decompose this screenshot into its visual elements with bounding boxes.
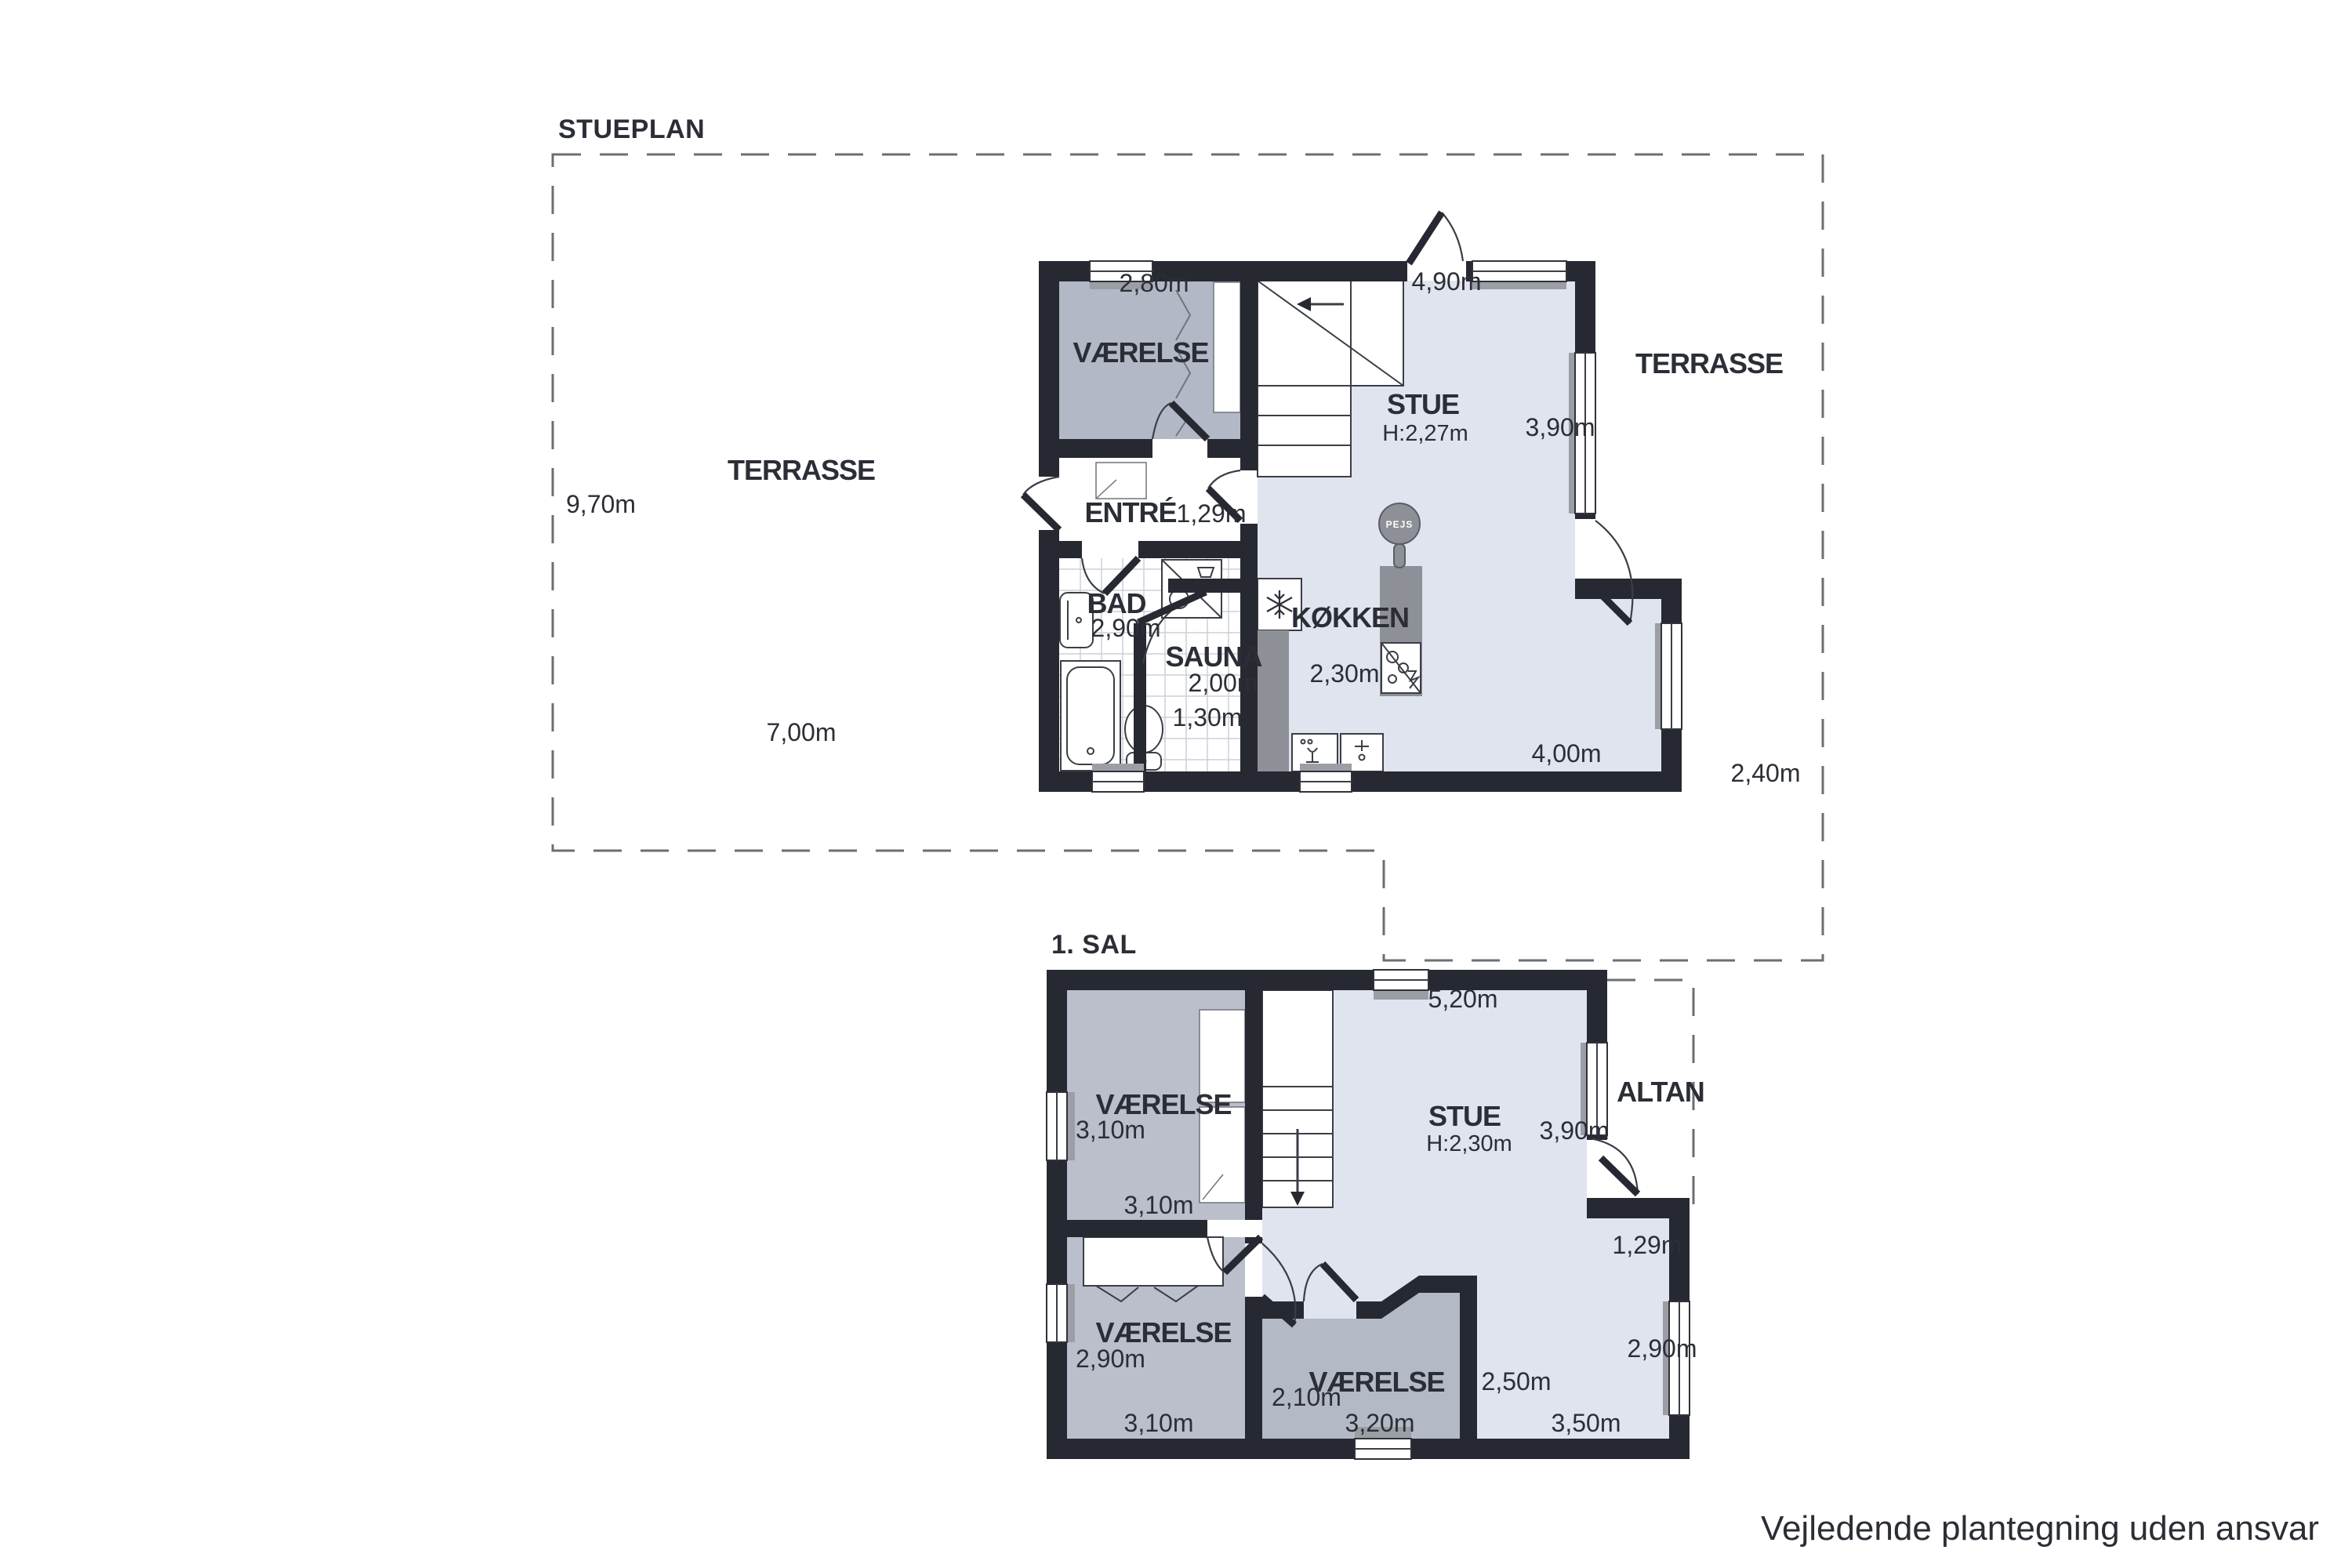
dim-center-bottom: 3,20m: [1345, 1409, 1415, 1437]
dim-nw-left: 3,10m: [1076, 1116, 1145, 1144]
ground-floor-plan: STUEPLAN TERRASSE 9,70m 7,00m TERRASSE 2…: [553, 114, 1823, 960]
terrasse-left-label: TERRASSE: [728, 454, 875, 486]
dim-entre-width: 1,29m: [1177, 499, 1247, 528]
dim-sw-bottom: 3,10m: [1124, 1409, 1194, 1437]
dim-terrasse-height: 9,70m: [566, 490, 636, 518]
ground-floor-title: STUEPLAN: [558, 114, 705, 144]
stove-icon: [1381, 643, 1421, 693]
disclaimer-text: Vejledende plantegning uden ansvar: [1761, 1509, 2319, 1548]
first-stue-label: STUE: [1428, 1100, 1501, 1132]
dim-terrasse-width: 7,00m: [767, 718, 837, 746]
sauna-label: SAUNA: [1165, 641, 1262, 673]
kitchen-counter-left: [1258, 630, 1289, 771]
first-staircase: [1262, 990, 1333, 1207]
dim-sw-left: 2,90m: [1076, 1345, 1145, 1373]
first-floor-title: 1. SAL: [1051, 930, 1137, 960]
altan-label: ALTAN: [1617, 1076, 1704, 1108]
dim-open-right: 2,90m: [1628, 1334, 1697, 1363]
dim-right-offset: 2,40m: [1731, 759, 1801, 787]
dim-nw-bottom: 3,10m: [1124, 1191, 1194, 1219]
dim-sauna-depth: 2,00m: [1189, 669, 1258, 697]
dim-kokken-width: 2,30m: [1310, 659, 1380, 688]
ground-vaerelse-label: VÆRELSE: [1073, 336, 1208, 368]
stue-terrace-door-top: [1409, 212, 1442, 263]
dim-vaerelse-width: 2,80m: [1120, 269, 1189, 297]
dim-center-left: 2,10m: [1272, 1383, 1341, 1411]
first-stue-height: H:2,30m: [1426, 1131, 1512, 1156]
kokken-label: KØKKEN: [1291, 601, 1409, 633]
dim-step-width: 1,29m: [1613, 1231, 1682, 1259]
dim-first-stue-right: 3,90m: [1540, 1116, 1610, 1145]
dim-center-right: 2,50m: [1482, 1367, 1552, 1396]
entre-closet: [1096, 463, 1146, 499]
pejs-label: PEJS: [1386, 519, 1414, 530]
terrasse-right-label: TERRASSE: [1635, 347, 1783, 379]
ground-stue-label: STUE: [1387, 388, 1459, 420]
dim-stue-top: 4,90m: [1412, 267, 1482, 296]
ground-stue-height: H:2,27m: [1382, 421, 1468, 446]
altan-door: [1601, 1158, 1638, 1194]
entrance-door: [1023, 495, 1059, 530]
floorplan-page: STUEPLAN TERRASSE 9,70m 7,00m TERRASSE 2…: [0, 0, 2352, 1568]
floorplan-drawing: STUEPLAN TERRASSE 9,70m 7,00m TERRASSE 2…: [0, 0, 2352, 1568]
dim-bad-width: 2,90m: [1091, 614, 1161, 642]
dim-stue-right: 3,90m: [1526, 413, 1595, 441]
dim-first-stue-top: 5,20m: [1428, 985, 1498, 1013]
entre-label: ENTRÉ: [1084, 496, 1176, 528]
first-floor-plan: 1. SAL VÆRELSE 3,10m 3,10m 5,20m STUE H:…: [1047, 930, 1704, 1459]
vaerelse-sw-label: VÆRELSE: [1095, 1316, 1231, 1348]
dim-dining-width: 4,00m: [1532, 739, 1602, 768]
bathtub-icon: [1061, 661, 1120, 771]
dim-sauna-width: 1,30m: [1173, 703, 1243, 731]
dim-open-bottom: 3,50m: [1552, 1409, 1621, 1437]
